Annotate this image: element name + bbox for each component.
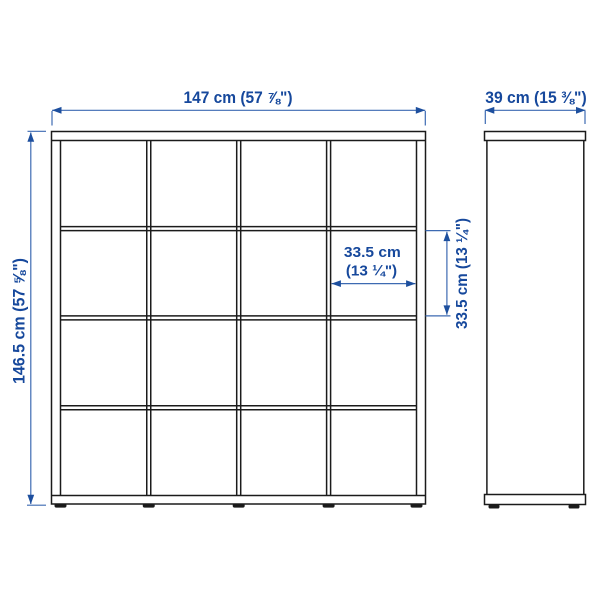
svg-text:33.5 cm: 33.5 cm [344,244,401,261]
svg-text:147 cm (57 ⅞"): 147 cm (57 ⅞") [184,89,293,107]
svg-text:(13 ¼"): (13 ¼") [346,263,397,280]
svg-text:39 cm (15 ⅜"): 39 cm (15 ⅜") [485,89,586,107]
svg-text:33.5 cm (13 ¼"): 33.5 cm (13 ¼") [454,218,471,329]
svg-text:146.5 cm (57 ⅝"): 146.5 cm (57 ⅝") [10,258,28,384]
